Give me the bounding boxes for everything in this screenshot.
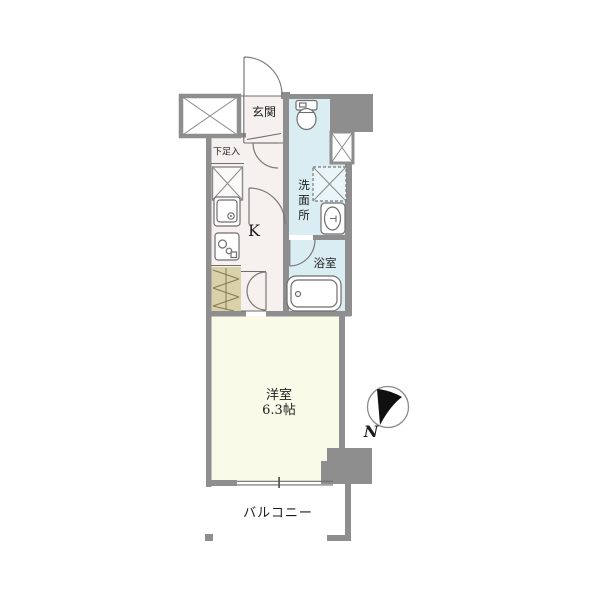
kitchen-stove xyxy=(215,233,239,260)
washer-pan-box xyxy=(313,167,346,201)
kitchen-label: K xyxy=(248,221,261,240)
shaft-box-top-left xyxy=(181,96,239,136)
floor-plan-image: N 玄関 下足入 K 洗 面 所 浴室 洋室 6.3帖 バルコニー xyxy=(0,0,600,600)
washroom-label: 洗 面 所 xyxy=(298,178,310,222)
north-compass: N xyxy=(363,387,409,442)
refrigerator-space-box xyxy=(213,167,243,200)
washbasin xyxy=(321,203,345,234)
balcony-label: バルコニー xyxy=(243,506,313,521)
svg-text:面: 面 xyxy=(298,193,310,207)
svg-text:所: 所 xyxy=(298,208,310,222)
main-room-size-label: 6.3帖 xyxy=(262,403,296,418)
toilet-fixture xyxy=(296,101,317,130)
kitchen-sink xyxy=(214,197,240,226)
floor-plan-page: N 玄関 下足入 K 洗 面 所 浴室 洋室 6.3帖 バルコニー xyxy=(0,0,600,600)
shoe-storage-label: 下足入 xyxy=(213,147,240,158)
closet xyxy=(211,267,241,311)
svg-text:洗: 洗 xyxy=(298,178,310,192)
bathroom-label: 浴室 xyxy=(314,256,337,270)
compass-north-label: N xyxy=(363,422,380,441)
entrance-label: 玄関 xyxy=(252,104,276,119)
pipe-space-box xyxy=(331,132,353,163)
main-room-label: 洋室 xyxy=(266,387,292,403)
entrance-door xyxy=(244,57,282,95)
bathtub xyxy=(287,276,341,311)
